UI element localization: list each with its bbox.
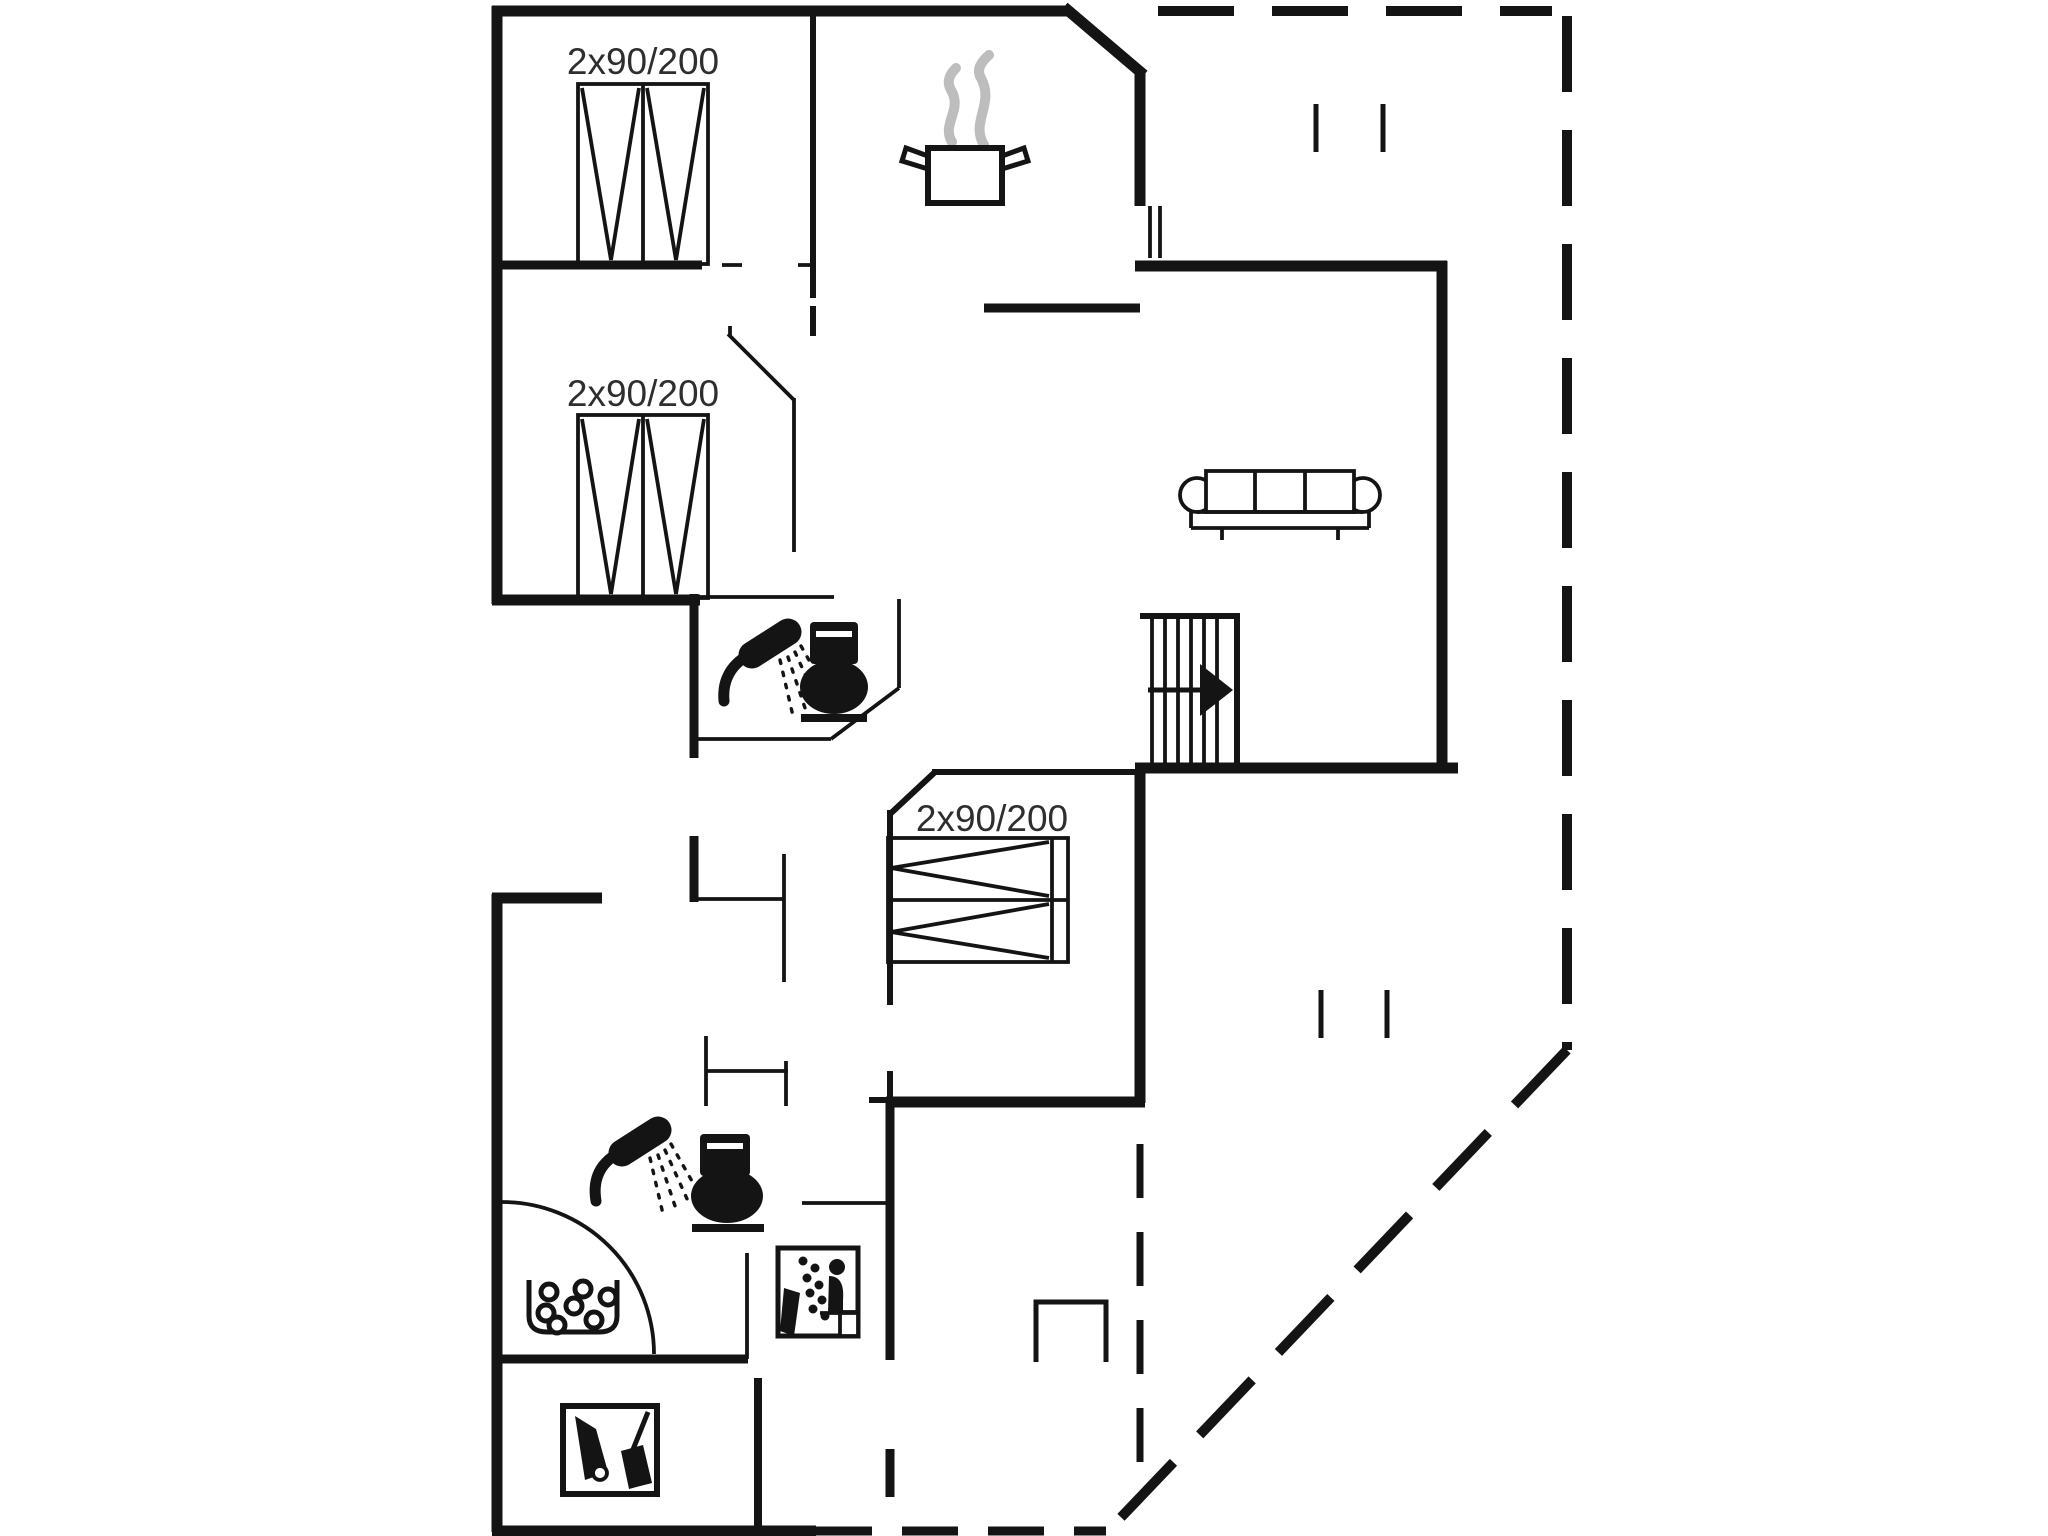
bubbles <box>538 1281 616 1333</box>
bathroom2-top-walls <box>706 1036 788 1106</box>
exterior-wall-top <box>492 7 1144 206</box>
bedroom2-double-bed: 2x90/200 <box>567 373 719 598</box>
double-bed-icon <box>578 415 708 598</box>
terrace-post-marks-bottom <box>1321 990 1387 1038</box>
sauna-person-body <box>828 1276 843 1313</box>
pot-right-handle <box>1002 148 1028 169</box>
terrace-post-marks-top <box>1316 104 1383 152</box>
shower-spray <box>650 1144 697 1214</box>
hall-walls <box>694 854 784 982</box>
bathroom2-toilet-icon <box>691 1134 764 1232</box>
bathroom1-toilet-icon <box>800 622 868 722</box>
sofa-icon <box>1180 471 1380 540</box>
bed2-size-label: 2x90/200 <box>567 373 719 414</box>
shower-head <box>622 1130 658 1153</box>
sauna-steam-dots <box>799 1257 830 1321</box>
whirlpool-icon <box>529 1280 617 1333</box>
terrace-marks <box>1036 104 1387 1362</box>
dashed-line-diagonal <box>1107 1050 1567 1532</box>
double-bed-icon <box>578 84 708 264</box>
double-bed-icon <box>888 838 1068 962</box>
sauna-person-head <box>829 1259 845 1275</box>
vacuum-wheel <box>593 1466 607 1480</box>
bathroom2-shower-icon <box>595 1130 697 1214</box>
bedroom3-double-bed: 2x90/200 <box>888 798 1068 962</box>
pot-left-handle <box>902 148 928 169</box>
bathroom1-thin-walls <box>694 597 899 739</box>
bedroom1-double-bed: 2x90/200 <box>567 41 719 264</box>
shower-hose <box>724 653 752 701</box>
cooking-pot-icon <box>902 55 1028 203</box>
terrace-step-mark <box>1036 1302 1106 1362</box>
shower-hose <box>595 1151 622 1201</box>
floor-plan-drawing: 2x90/200 2x90/200 2x90/200 <box>0 0 2048 1536</box>
living-room-walls <box>1135 261 1458 773</box>
sauna-icon <box>778 1248 858 1336</box>
bed1-size-label: 2x90/200 <box>567 41 719 82</box>
cleaning-equipment-icon <box>563 1406 657 1494</box>
bedroom2-chamfer-wall <box>728 326 794 552</box>
pot-body <box>928 148 1002 203</box>
sauna-bench <box>840 1312 858 1336</box>
window-icon <box>1150 206 1160 258</box>
bed3-size-label: 2x90/200 <box>916 798 1068 839</box>
steam-wisps <box>949 55 989 145</box>
shower-head <box>752 632 788 655</box>
staircase-icon <box>1140 616 1240 768</box>
sauna-ladle <box>780 1288 800 1336</box>
broom-head <box>621 1445 652 1489</box>
floor-plan-page: 2x90/200 2x90/200 2x90/200 <box>0 0 2048 1536</box>
